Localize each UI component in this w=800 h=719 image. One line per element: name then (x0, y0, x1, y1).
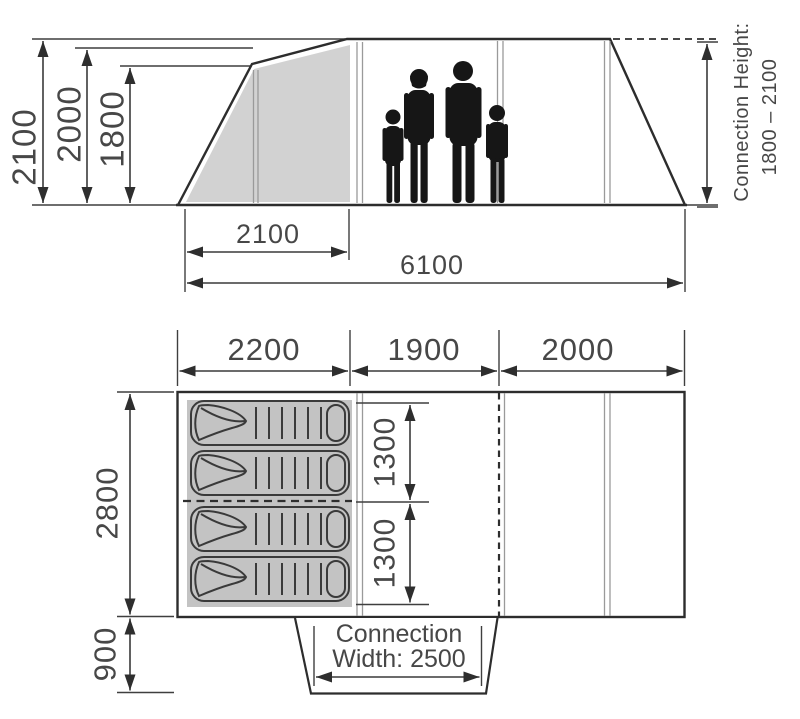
dim-height-main: 2000 (51, 50, 88, 203)
side-elevation: 2100 2000 1800 Connection Height: 1800 –… (6, 22, 782, 292)
tent-dimension-diagram: 2100 2000 1800 Connection Height: 1800 –… (0, 0, 800, 719)
porch-shaded-area (186, 45, 350, 202)
connection-height-value: 1800 – 2100 (759, 59, 781, 176)
person-silhouette-man (446, 61, 482, 203)
person-silhouette-woman (404, 69, 434, 203)
dim-connection-height: Connection Height: 1800 – 2100 (697, 22, 781, 207)
connection-height-label: Connection Height: (731, 22, 753, 201)
connection-width-value: Width: 2500 (332, 645, 465, 673)
dim-total-length-label: 6100 (400, 250, 464, 280)
dim-height-main-label: 2000 (51, 85, 88, 162)
dim-section-sleeping-label: 2200 (228, 332, 301, 367)
family-silhouette-icon (383, 61, 509, 203)
dim-porch-length-label: 2100 (236, 219, 300, 249)
dim-section-front-label: 2000 (542, 332, 615, 367)
dim-plan-top: 2200 1900 2000 (178, 330, 685, 386)
dim-porch-length: 2100 (185, 209, 349, 292)
dim-berth-bottom-label: 1300 (369, 518, 402, 589)
connection-width-label: Connection (336, 620, 462, 648)
dim-canopy-depth: 900 (88, 619, 175, 693)
dim-plan-width: 2800 (90, 392, 175, 617)
dim-height-front: 1800 (94, 68, 131, 203)
dim-canopy-depth-label: 900 (88, 627, 123, 682)
dim-height-front-label: 1800 (94, 90, 131, 167)
dim-height-overall: 2100 (6, 41, 44, 203)
dim-section-living-label: 1900 (388, 332, 461, 367)
dim-plan-width-label: 2800 (90, 467, 125, 540)
dim-berth-top-label: 1300 (369, 417, 402, 488)
diagram-canvas: 2100 2000 1800 Connection Height: 1800 –… (0, 0, 800, 719)
dim-height-overall-label: 2100 (6, 108, 43, 185)
person-silhouette-girl (383, 110, 404, 204)
floor-plan: 2200 1900 2000 (88, 330, 685, 694)
